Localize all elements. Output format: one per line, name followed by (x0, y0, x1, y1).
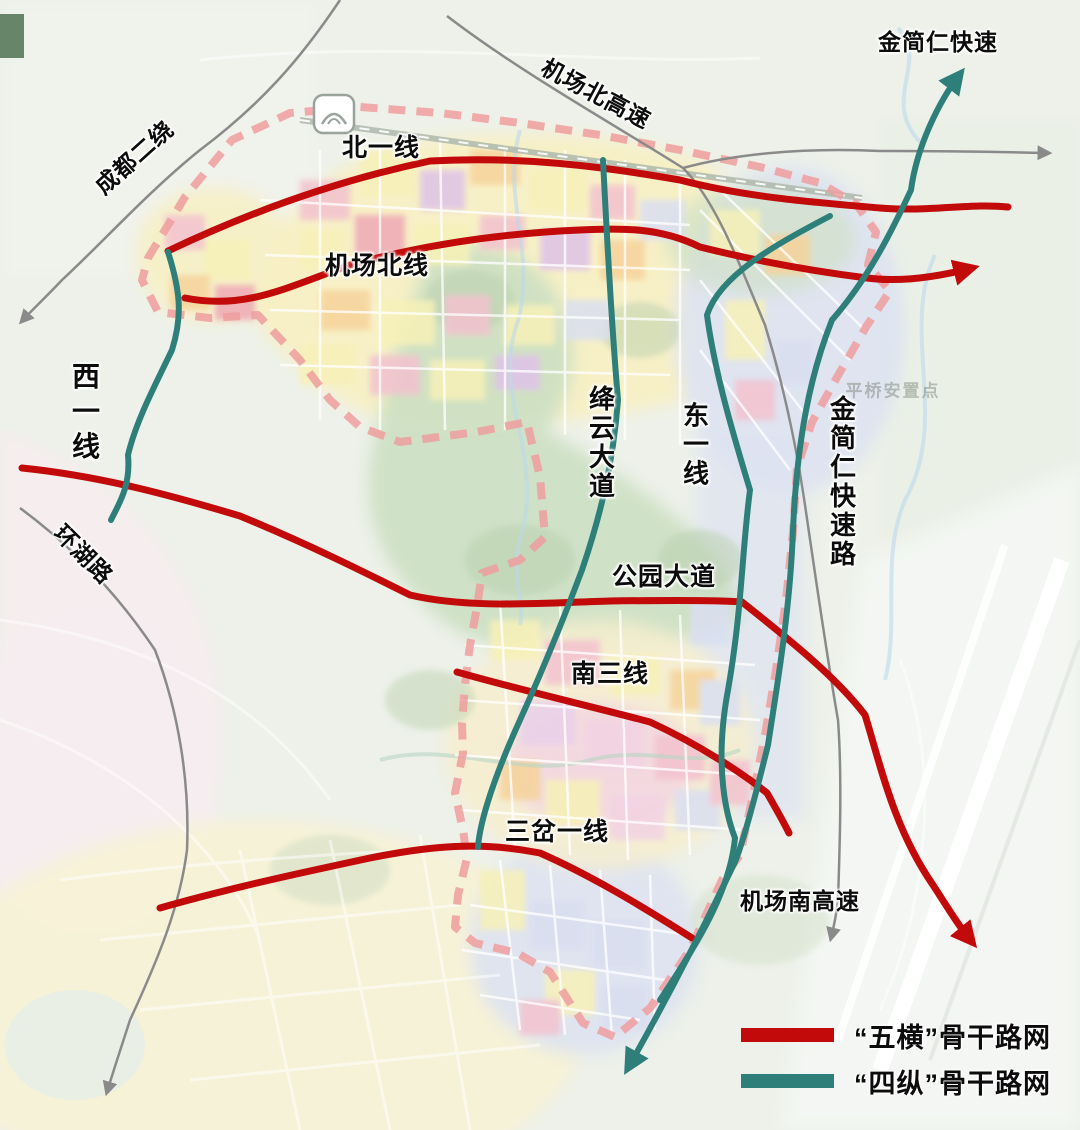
label-dong-yi-xian: 东一线 (677, 402, 714, 489)
legend-label-five-horizontal: “五横”骨干路网 (854, 1016, 1051, 1055)
planning-map-canvas (0, 0, 1080, 1130)
label-jiangyun-dadao: 绛云大道 (583, 385, 620, 501)
legend-item-five-horizontal: “五横”骨干路网 (741, 1012, 1051, 1058)
label-sancha-yi-xian: 三岔一线 (505, 812, 609, 848)
legend-item-four-vertical: “四纵”骨干路网 (741, 1058, 1051, 1104)
label-jinjianren-kuaisu: 金简仁快速 (878, 23, 998, 57)
label-jichang-nan-gaosu: 机场南高速 (740, 882, 860, 916)
label-jinjianren-kuaisu-lu: 金简仁快速路 (824, 395, 861, 569)
label-xi-yi-xian: 西一线 (64, 362, 104, 467)
legend-label-four-vertical: “四纵”骨干路网 (854, 1062, 1051, 1101)
urban-road-network-map: 北一线 机场北线 成都二绕 机场北高速 金简仁快速 西一线 环湖路 绛云大道 东… (0, 0, 1080, 1130)
label-nansan-xian: 南三线 (571, 654, 649, 690)
red-route-swatch (741, 1028, 834, 1042)
legend: “五横”骨干路网 “四纵”骨干路网 (741, 1012, 1051, 1104)
label-gongyuan-dadao: 公园大道 (612, 557, 716, 593)
label-bei-yi-xian: 北一线 (342, 128, 420, 164)
label-jichang-bei-xian: 机场北线 (325, 246, 429, 282)
map-edge-fragment (0, 14, 24, 58)
label-pingqiao-anzhidian: 平桥安置点 (846, 377, 941, 402)
teal-route-swatch (741, 1074, 834, 1088)
